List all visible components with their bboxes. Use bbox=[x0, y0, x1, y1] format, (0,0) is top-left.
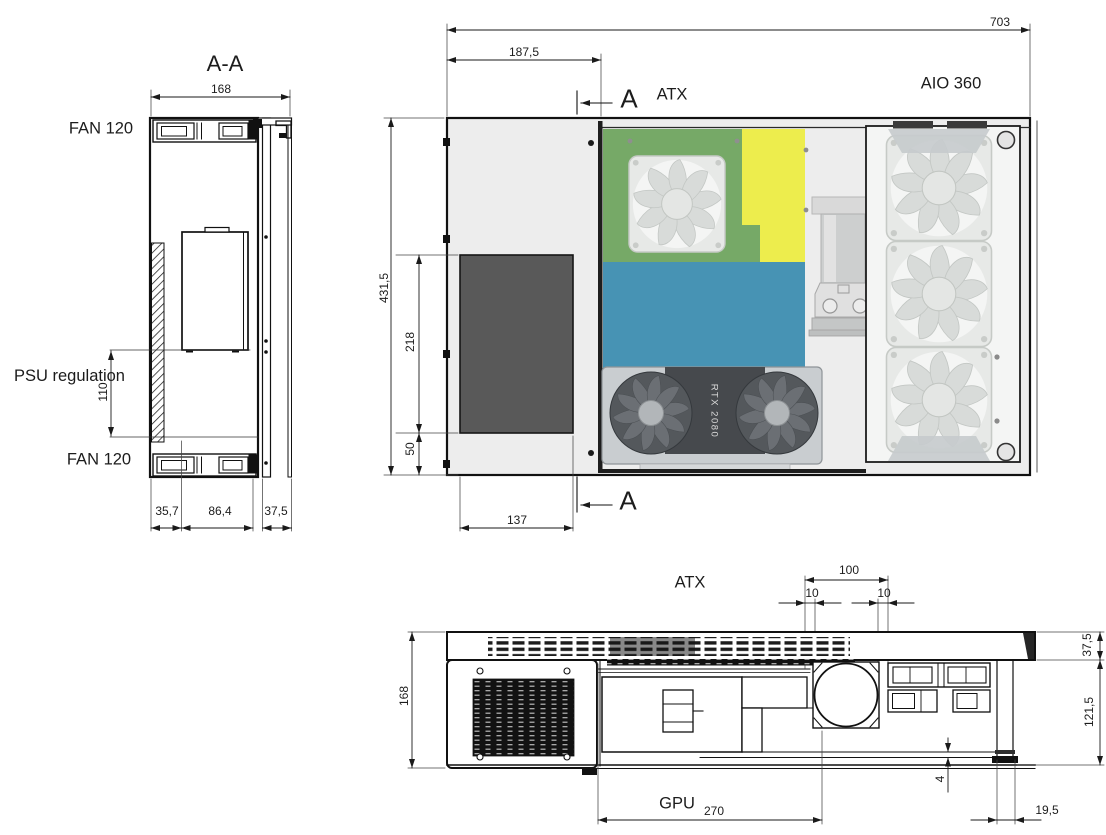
psu-block bbox=[182, 232, 248, 350]
dim-total-width: 703 bbox=[990, 15, 1010, 29]
gpu-label: GPU bbox=[659, 795, 695, 814]
dim-vent-height: 218 bbox=[403, 332, 417, 352]
gpu-model-text: RTX 2080 bbox=[709, 384, 720, 439]
dim-vent-width: 137 bbox=[507, 513, 527, 527]
dim-foot-gap: 4 bbox=[933, 776, 947, 783]
dim-bottom-right: 37,5 bbox=[264, 504, 287, 518]
section-view-linework bbox=[110, 90, 292, 531]
fan-bottom-label: FAN 120 bbox=[67, 451, 131, 470]
top-view-linework bbox=[384, 24, 1037, 531]
dim-margin-left: 10 bbox=[805, 586, 818, 600]
dim-section-width: 168 bbox=[211, 82, 231, 96]
dim-foot-width: 19,5 bbox=[1035, 803, 1058, 817]
front-view-linework bbox=[408, 576, 1104, 824]
section-view-title: A-A bbox=[207, 51, 244, 77]
board-lower-zone bbox=[603, 262, 805, 368]
psu-regulation-label: PSU regulation bbox=[14, 366, 129, 386]
dim-bottom-offset: 50 bbox=[403, 442, 417, 455]
section-marker-bottom: A bbox=[619, 486, 636, 517]
dim-gpu-length: 270 bbox=[704, 804, 724, 818]
dim-top-band: 37,5 bbox=[1080, 633, 1094, 656]
fan-top-label: FAN 120 bbox=[69, 120, 133, 139]
atx-label-top-view: ATX bbox=[657, 86, 688, 105]
section-marker-top: A bbox=[620, 84, 637, 115]
dim-pump-zone: 100 bbox=[839, 563, 859, 577]
cpu-fan-icon bbox=[629, 156, 725, 252]
dim-psu-height: 110 bbox=[96, 382, 110, 401]
psu-vent-hatch bbox=[152, 243, 165, 442]
dim-bottom-mid: 86,4 bbox=[208, 504, 231, 518]
pump-circle bbox=[815, 664, 878, 727]
dim-bottom-left: 35,7 bbox=[155, 504, 178, 518]
atx-label-front-view: ATX bbox=[675, 574, 706, 593]
psu-mesh-vent bbox=[473, 679, 574, 756]
cad-drawing-sheet: A-A 168 FAN 120 FAN 120 PSU regulation 1… bbox=[0, 0, 1106, 835]
drawing-linework bbox=[0, 0, 1106, 835]
dim-total-height: 431,5 bbox=[377, 273, 391, 303]
dim-body-height: 121,5 bbox=[1082, 697, 1096, 727]
aio-radiator bbox=[866, 121, 1020, 462]
dim-front-height: 168 bbox=[397, 686, 411, 706]
dim-left-compartment: 187,5 bbox=[509, 45, 539, 59]
front-vent-panel bbox=[460, 255, 573, 433]
aio-360-label: AIO 360 bbox=[921, 75, 982, 94]
dim-margin-right: 10 bbox=[877, 586, 890, 600]
